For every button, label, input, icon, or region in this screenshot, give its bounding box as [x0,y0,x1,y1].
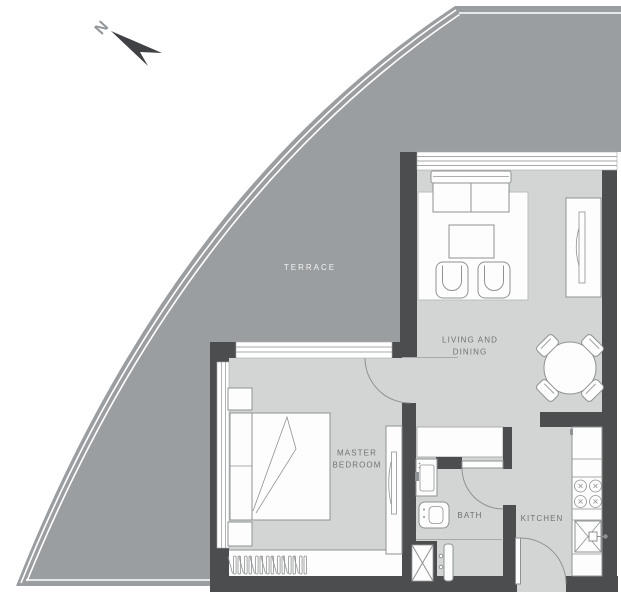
room-label-bath: BATH [457,510,482,522]
north-arrow-icon [111,31,162,66]
wall-segment [400,152,417,358]
wall-segment [436,457,462,469]
sofa [431,171,511,212]
nightstand [228,522,252,546]
room-label-kitchen: KITCHEN [521,513,564,525]
room-label-line: BEDROOM [332,459,381,471]
vestibule-closet [417,427,503,457]
room-label-line: DINING [442,346,498,358]
wall-segment [602,170,617,592]
toilet [419,502,449,528]
window-unit [566,198,601,297]
wall-segment [503,427,512,469]
armchair [436,262,468,298]
service-shaft [408,541,437,585]
room-label-terrace: TERRACE [284,262,336,274]
wall-segment [210,576,517,592]
armchair [478,262,510,298]
wall-segment [392,342,417,358]
dresser [386,426,402,554]
hanger-rail [228,556,307,574]
coffee-table [449,225,494,258]
wall-segment [503,505,516,585]
room-label-master-bedroom: MASTER BEDROOM [332,447,381,470]
window-band [236,342,392,358]
room-label-line: MASTER [332,447,381,459]
wall-segment [540,412,602,427]
fridge-handle [570,429,573,435]
wall-segment [210,342,229,362]
window-band [217,362,229,548]
bed [230,413,330,520]
bathroom-vanity [415,459,437,496]
room-label-line: LIVING AND [442,334,498,346]
floor-plan: N TERRACE LIVING AND DINING MASTER BEDRO… [0,0,621,600]
nightstand [228,388,252,410]
floor-plan-drawing [0,0,621,600]
room-label-living-dining: LIVING AND DINING [442,334,498,357]
